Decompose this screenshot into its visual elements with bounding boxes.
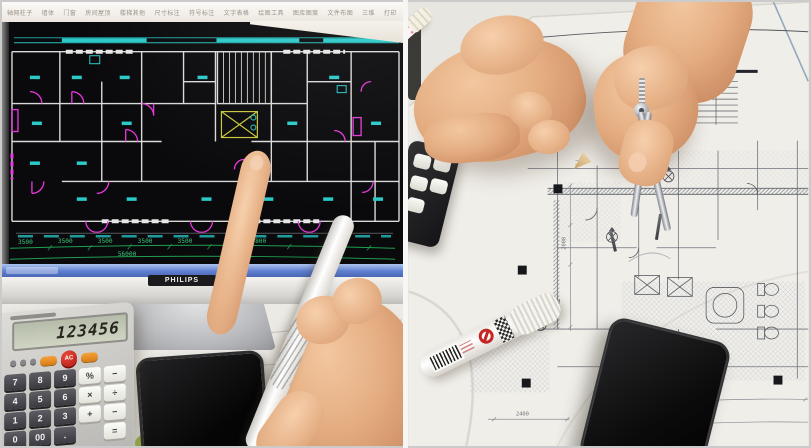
cad-menu-item: 房间屋顶: [85, 8, 111, 17]
calc-corner-key: [429, 178, 449, 196]
calc-key: 8: [29, 371, 51, 389]
taskbar-button: [6, 267, 58, 274]
cad-menu-item: 轴网柱子: [7, 8, 33, 17]
photo-divider: [403, 0, 408, 448]
calc-key: 00: [29, 428, 51, 446]
calc-key: 4: [4, 392, 26, 410]
calc-key: −: [104, 365, 126, 383]
calc-key: +: [79, 405, 101, 423]
orange-key: [40, 355, 57, 366]
cad-menu-item: 图库图案: [293, 8, 319, 17]
cad-menu-item: 绘图工具: [258, 8, 284, 17]
cad-toolbar: 轴网柱子 墙体 门窗 房间屋顶 楼梯其他 尺寸标注 符号标注 文字表格 绘图工具…: [2, 2, 403, 22]
calculator: 123456 AC 7 8 9 % − 4 5 6 × ÷ 1: [2, 302, 134, 446]
calc-key: =: [104, 422, 126, 440]
calc-corner-key: [409, 175, 429, 193]
monitor-stand: [118, 302, 276, 350]
photo-collage: 3500 3500 3500 3500 3500 7800 56000 轴网柱子…: [0, 0, 811, 448]
marker-logo-icon: [476, 326, 496, 346]
photo-right-blueprint: 9000 30700 2400 2000: [408, 2, 809, 446]
calc-key: 7: [4, 373, 26, 391]
cad-menu-item: 符号标注: [189, 8, 215, 17]
dimension-label: 3500: [58, 238, 73, 245]
cad-stairs: [223, 52, 265, 104]
monitor-brand-logo: PHILIPS: [148, 275, 216, 286]
memory-key: [30, 358, 36, 365]
calc-key: ÷: [104, 384, 126, 402]
dimension-label: 3500: [18, 239, 33, 246]
cad-menu-item: 三维: [362, 8, 375, 17]
dimension-label: 3500: [138, 238, 153, 245]
calc-key: .: [54, 426, 76, 444]
cad-menu-item: 文件布图: [328, 8, 354, 17]
photo-left-cad-monitor: 3500 3500 3500 3500 3500 7800 56000 轴网柱子…: [2, 2, 403, 446]
orange-key: [81, 351, 98, 362]
cad-menu-item: 尺寸标注: [154, 8, 180, 17]
calc-key: 9: [54, 369, 76, 387]
calc-corner-key: [408, 196, 425, 214]
dimension-label: 3500: [98, 238, 113, 245]
calc-key: −: [104, 403, 126, 421]
cad-menu-item: 门窗: [63, 8, 76, 17]
dimension-label: 2000: [561, 237, 567, 250]
calc-key: 1: [4, 411, 26, 429]
memory-key: [20, 359, 26, 366]
dimension-label: 3500: [178, 238, 193, 245]
cad-menu-item: 打印: [384, 8, 397, 17]
calc-key: 6: [54, 388, 76, 406]
dimension-label: 2400: [516, 411, 529, 417]
ac-key: AC: [61, 350, 77, 367]
cad-menu-item: 墙体: [42, 8, 55, 17]
calc-key: 0: [4, 430, 26, 446]
cad-menu-item: 文字表格: [224, 8, 250, 17]
calc-key: %: [79, 367, 101, 385]
monitor-bezel-left: [2, 21, 9, 266]
calc-key: 5: [29, 390, 51, 408]
calc-key: ×: [79, 386, 101, 404]
calc-key: 2: [29, 409, 51, 427]
dimension-total-label: 56000: [118, 251, 137, 258]
cad-menu-item: 楼梯其他: [120, 8, 146, 17]
calc-key: 3: [54, 407, 76, 425]
calculator-keypad: 7 8 9 % − 4 5 6 × ÷ 1 2 3 + − 0 00 . =: [4, 365, 126, 446]
memory-key: [10, 360, 16, 367]
